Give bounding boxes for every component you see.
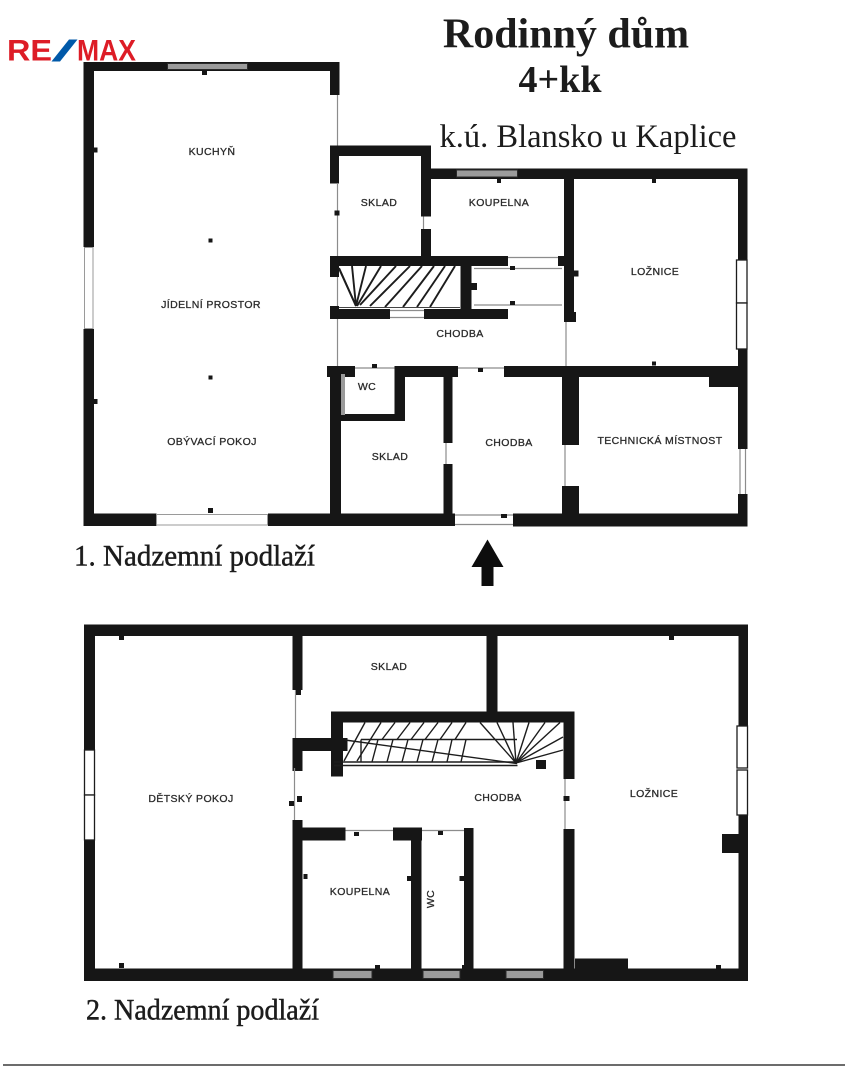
svg-text:KUCHYŇ: KUCHYŇ [189,145,236,158]
svg-text:WC: WC [425,890,437,908]
svg-text:TECHNICKÁ MÍSTNOST: TECHNICKÁ MÍSTNOST [597,434,722,447]
svg-text:WC: WC [358,381,376,393]
svg-text:SKLAD: SKLAD [361,197,397,209]
svg-text:k.ú. Blansko u Kaplice: k.ú. Blansko u Kaplice [440,119,737,155]
svg-text:CHODBA: CHODBA [485,437,532,449]
svg-text:KOUPELNA: KOUPELNA [469,197,529,209]
svg-text:MAX: MAX [77,35,136,68]
svg-text:Rodinný dům: Rodinný dům [443,12,689,58]
svg-text:SKLAD: SKLAD [371,661,407,673]
svg-text:DĚTSKÝ POKOJ: DĚTSKÝ POKOJ [148,792,233,805]
svg-text:RE: RE [7,35,52,68]
svg-text:CHODBA: CHODBA [474,792,521,804]
svg-text:CHODBA: CHODBA [436,328,483,340]
svg-text:2. Nadzemní podlaží: 2. Nadzemní podlaží [86,995,319,1027]
svg-text:LOŽNICE: LOŽNICE [631,265,679,278]
svg-text:OBÝVACÍ POKOJ: OBÝVACÍ POKOJ [167,435,257,448]
svg-text:LOŽNICE: LOŽNICE [630,787,678,800]
svg-text:4+kk: 4+kk [519,59,603,101]
svg-text:JÍDELNÍ PROSTOR: JÍDELNÍ PROSTOR [161,298,261,311]
svg-text:SKLAD: SKLAD [372,451,408,463]
svg-text:KOUPELNA: KOUPELNA [330,886,390,898]
svg-text:1. Nadzemní podlaží: 1. Nadzemní podlaží [74,540,316,573]
